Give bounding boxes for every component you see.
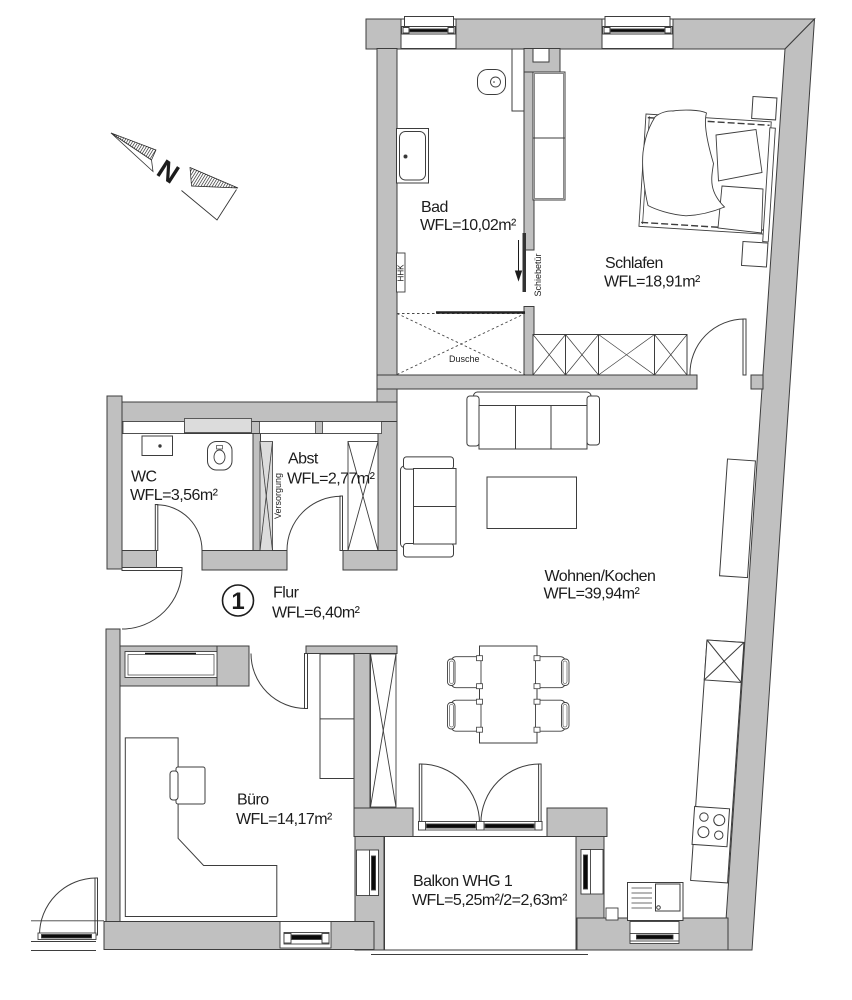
svg-text:WFL=14,17m²: WFL=14,17m² (236, 811, 333, 828)
svg-text:Büro: Büro (237, 792, 269, 809)
svg-text:HHK: HHK (397, 264, 406, 282)
svg-text:Schlafen: Schlafen (605, 255, 663, 272)
svg-text:WFL=39,94m²: WFL=39,94m² (544, 586, 641, 603)
svg-text:Versorgung: Versorgung (273, 473, 283, 519)
svg-text:Bad: Bad (421, 199, 448, 216)
svg-text:Dusche: Dusche (449, 354, 480, 364)
svg-text:Wohnen/Kochen: Wohnen/Kochen (545, 568, 656, 585)
svg-text:Balkon WHG 1: Balkon WHG 1 (413, 873, 513, 890)
svg-text:1: 1 (231, 588, 244, 615)
svg-text:Abst: Abst (288, 451, 319, 468)
svg-text:WFL=2,77m²: WFL=2,77m² (287, 471, 376, 488)
svg-text:WFL=3,56m²: WFL=3,56m² (130, 487, 219, 504)
svg-text:WFL=10,02m²: WFL=10,02m² (420, 217, 517, 234)
svg-text:WFL=6,40m²: WFL=6,40m² (272, 605, 361, 622)
svg-text:WC: WC (131, 469, 157, 486)
svg-text:Schiebetür: Schiebetür (533, 253, 543, 296)
svg-text:WFL=18,91m²: WFL=18,91m² (604, 274, 701, 291)
svg-text:Flur: Flur (273, 585, 300, 602)
svg-text:WFL=5,25m²/2=2,63m²: WFL=5,25m²/2=2,63m² (412, 892, 568, 909)
